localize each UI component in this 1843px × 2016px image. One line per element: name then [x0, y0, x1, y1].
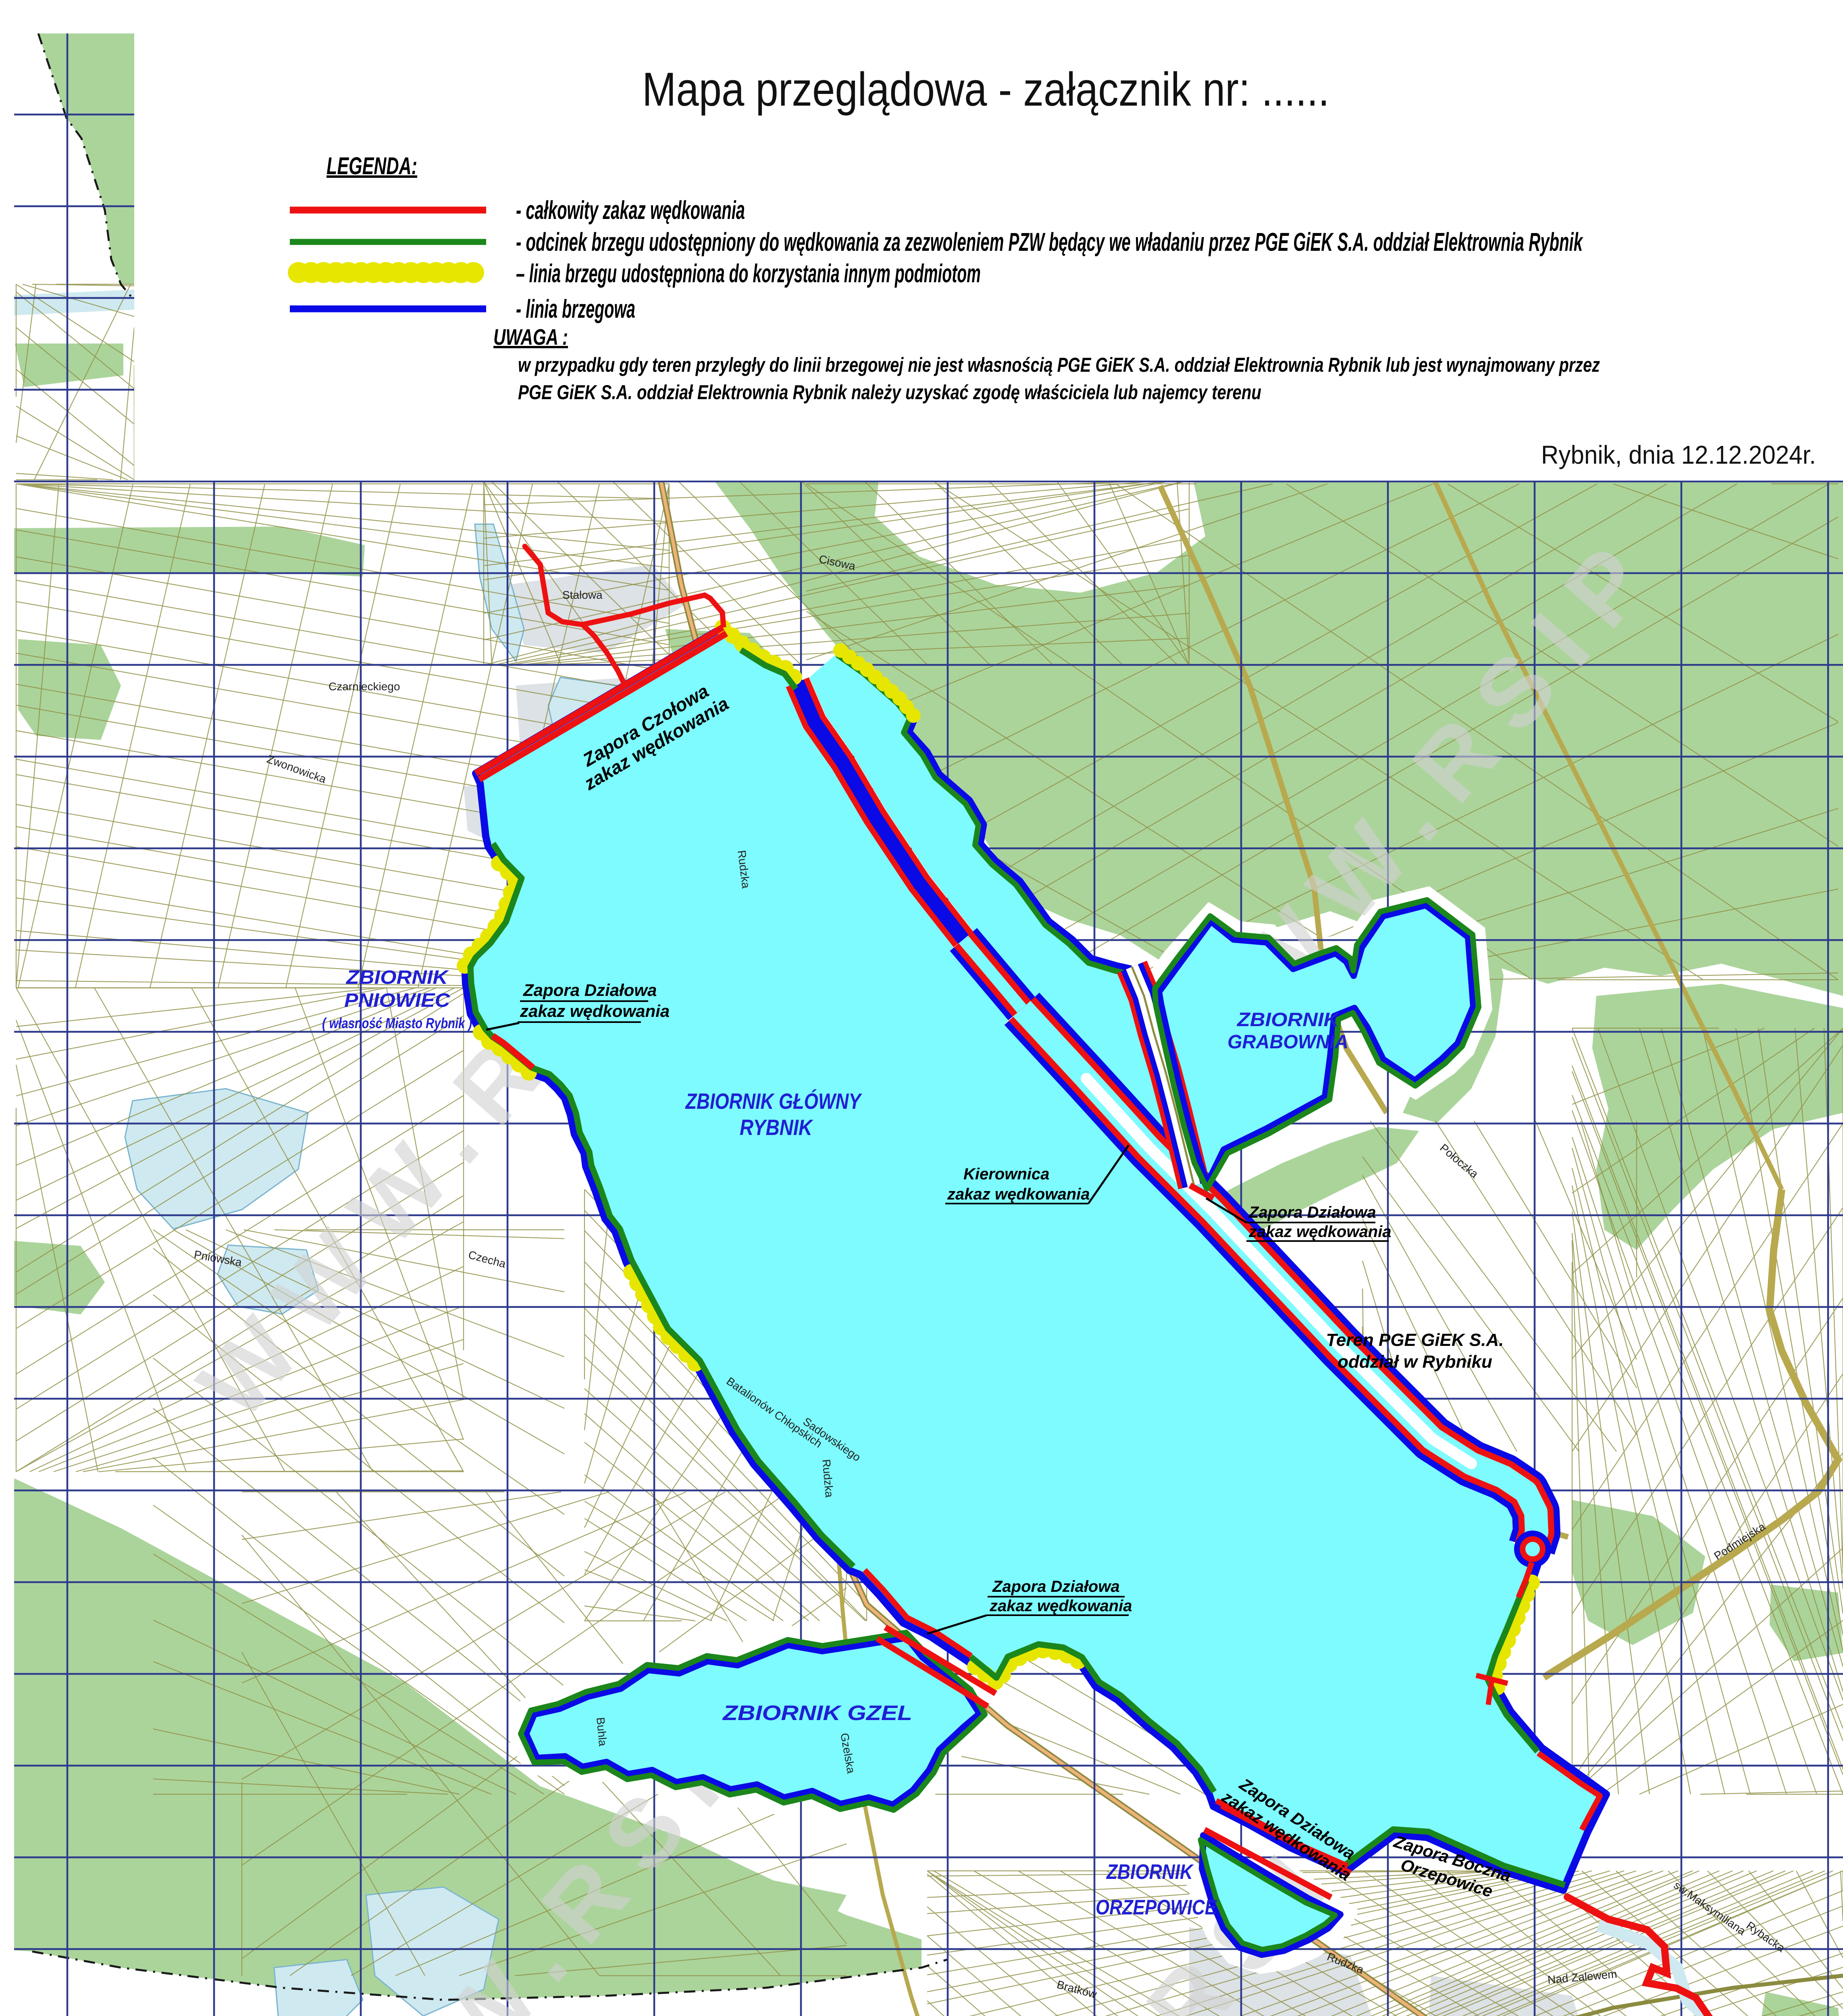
- svg-text:zakaz wędkowania: zakaz wędkowania: [1248, 1223, 1391, 1241]
- svg-text:PGE GiEK S.A. oddział Elektrow: PGE GiEK S.A. oddział Elektrownia Rybnik…: [518, 381, 1261, 404]
- svg-text:- odcinek brzegu udostępniony: - odcinek brzegu udostępniony do wędkowa…: [516, 227, 1583, 256]
- svg-text:Mapa przeglądowa - załącznik n: Mapa przeglądowa - załącznik nr: ......: [642, 63, 1329, 116]
- svg-text:– linia brzegu udostępniona do: – linia brzegu udostępniona do korzystan…: [516, 259, 981, 288]
- svg-text:Buhla: Buhla: [594, 1717, 609, 1747]
- svg-text:w przypadku gdy teren przyległ: w przypadku gdy teren przyległy do linii…: [518, 354, 1600, 376]
- svg-text:zakaz wędkowania: zakaz wędkowania: [989, 1597, 1132, 1615]
- svg-text:( własność Miasto Rybnik ): ( własność Miasto Rybnik ): [322, 1015, 472, 1031]
- svg-text:Zapora Działowa: Zapora Działowa: [1248, 1204, 1376, 1221]
- svg-text:zakaz wędkowania: zakaz wędkowania: [520, 1002, 670, 1020]
- svg-text:Stalowa: Stalowa: [562, 589, 603, 601]
- svg-text:RYBNIK: RYBNIK: [740, 1115, 814, 1140]
- svg-text:Czarnieckiego: Czarnieckiego: [329, 680, 400, 693]
- svg-text:Zapora Działowa: Zapora Działowa: [992, 1578, 1120, 1595]
- svg-text:LEGENDA:: LEGENDA:: [327, 152, 417, 179]
- svg-text:PNIOWIEC: PNIOWIEC: [344, 990, 450, 1011]
- svg-text:ZBIORNIK: ZBIORNIK: [345, 967, 449, 988]
- svg-text:UWAGA :: UWAGA :: [493, 324, 568, 350]
- svg-text:ORZEPOWICE: ORZEPOWICE: [1096, 1896, 1217, 1919]
- svg-text:oddział w Rybniku: oddział w Rybniku: [1338, 1352, 1492, 1372]
- svg-text:- całkowity zakaz wędkowania: - całkowity zakaz wędkowania: [516, 196, 745, 225]
- svg-text:ZBIORNIK GZEL: ZBIORNIK GZEL: [722, 1702, 912, 1725]
- svg-text:Zapora Działowa: Zapora Działowa: [523, 981, 657, 1000]
- svg-text:ZBIORNIK GŁÓWNY: ZBIORNIK GŁÓWNY: [685, 1089, 862, 1114]
- svg-text:Rybnik, dnia 12.12.2024r.: Rybnik, dnia 12.12.2024r.: [1541, 440, 1816, 469]
- svg-text:ZBIORNIK: ZBIORNIK: [1236, 1009, 1340, 1031]
- svg-text:zakaz wędkowania: zakaz wędkowania: [947, 1185, 1090, 1203]
- svg-text:GRABOWNIA: GRABOWNIA: [1227, 1031, 1348, 1053]
- svg-text:Teren PGE GiEK S.A.: Teren PGE GiEK S.A.: [1326, 1330, 1504, 1350]
- svg-text:Kierownica: Kierownica: [963, 1165, 1049, 1183]
- svg-text:- linia brzegowa: - linia brzegowa: [516, 294, 635, 323]
- svg-text:ZBIORNIK: ZBIORNIK: [1106, 1860, 1194, 1884]
